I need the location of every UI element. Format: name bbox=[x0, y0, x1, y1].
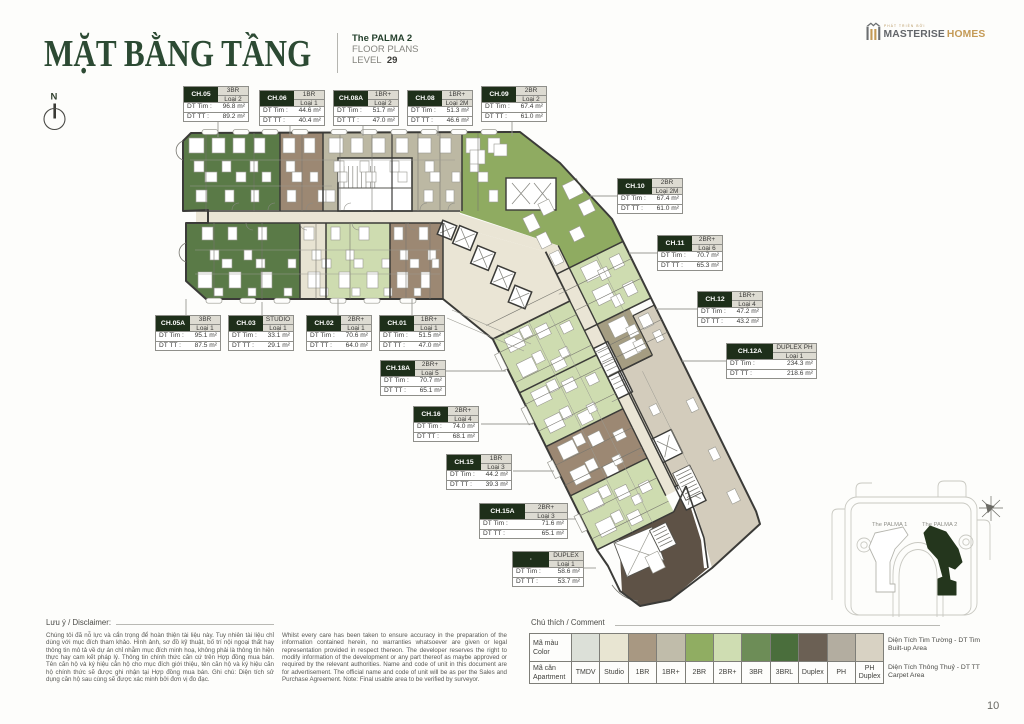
svg-text:The PALMA 2: The PALMA 2 bbox=[922, 522, 957, 528]
